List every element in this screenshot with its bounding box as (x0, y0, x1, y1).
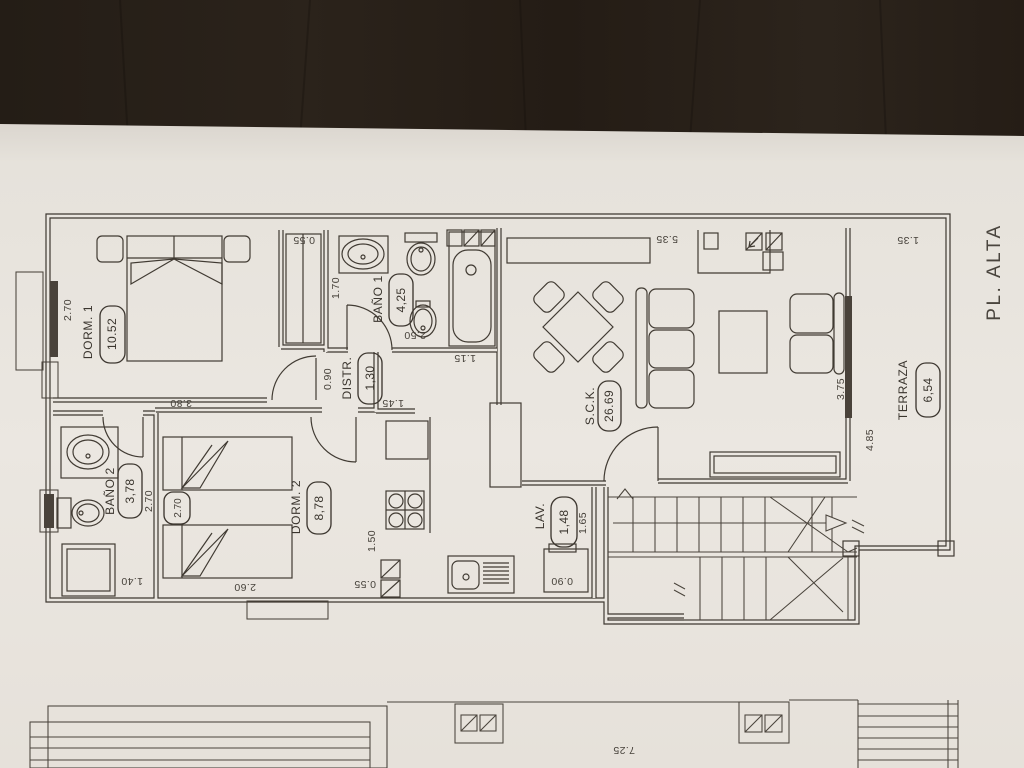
floor-plan-photo: DORM. 1 10.52 BAÑO 1 4,25 DISTR. 1,30 S.… (0, 0, 1024, 768)
dim-dorm1-length: 3.80 (170, 397, 192, 409)
room-area-sck: 26.69 (602, 390, 616, 422)
room-area-bano2: 3,78 (123, 479, 137, 504)
dim-terraza-window: 3.75 (835, 378, 847, 400)
dim-lav-depth: 1.65 (577, 512, 589, 534)
dim-dorm1-window: 2.70 (62, 299, 74, 321)
dim-terraza-depth: 4.85 (864, 429, 876, 451)
dim-terraza-top: 1.35 (897, 234, 919, 246)
dim-washer-width: 0.90 (551, 575, 573, 587)
room-area-bano1: 4,25 (394, 288, 408, 313)
dim-distr-passage: 0.90 (322, 368, 334, 390)
dim-shower-width: 1.40 (121, 575, 143, 587)
room-area-dorm2: 8,78 (312, 496, 326, 521)
dim-sck-width: 5.35 (656, 233, 678, 245)
room-name-dorm1: DORM. 1 (81, 305, 95, 359)
room-name-sck: S.C.K. (583, 387, 597, 425)
room-name-bano1: BAÑO 1 (371, 275, 385, 323)
dim-kitchen-nook: 0.55 (354, 578, 376, 590)
dim-bano1-depth: 1.70 (330, 277, 342, 299)
room-name-bano2: BAÑO 2 (103, 467, 117, 515)
room-name-terraza: TERRAZA (896, 360, 910, 420)
dim-closet-width: 0.55 (293, 234, 315, 246)
room-area-terraza: 6,54 (921, 378, 935, 403)
room-area-dorm1: 10.52 (105, 318, 119, 350)
dim-dorm2-width: 2.60 (234, 581, 256, 593)
dim-bano1-width: 2.50 (404, 329, 426, 341)
dim-dorm2-beds: 2.70 (173, 498, 184, 518)
bano2-window-glazing (44, 494, 54, 528)
room-area-distr: 1,30 (363, 366, 377, 391)
room-name-dorm2: DORM. 2 (289, 480, 303, 534)
dorm1-window-glazing (50, 281, 58, 357)
room-name-lav: LAV. (533, 503, 547, 529)
dim-kitchen-depth: 1.50 (366, 530, 378, 552)
dim-lower-plan-width: 7.25 (613, 744, 635, 756)
dim-tub-width: 1.15 (454, 352, 476, 364)
floor-plan-drawing: DORM. 1 10.52 BAÑO 1 4,25 DISTR. 1,30 S.… (0, 0, 1024, 768)
dim-kitchen-opening: 1.45 (382, 397, 404, 409)
dim-bano2-depth: 2.70 (143, 490, 155, 512)
room-area-lav: 1,48 (557, 510, 571, 535)
room-name-distr: DISTR. (340, 357, 354, 400)
floor-title: PL. ALTA (984, 223, 1005, 320)
